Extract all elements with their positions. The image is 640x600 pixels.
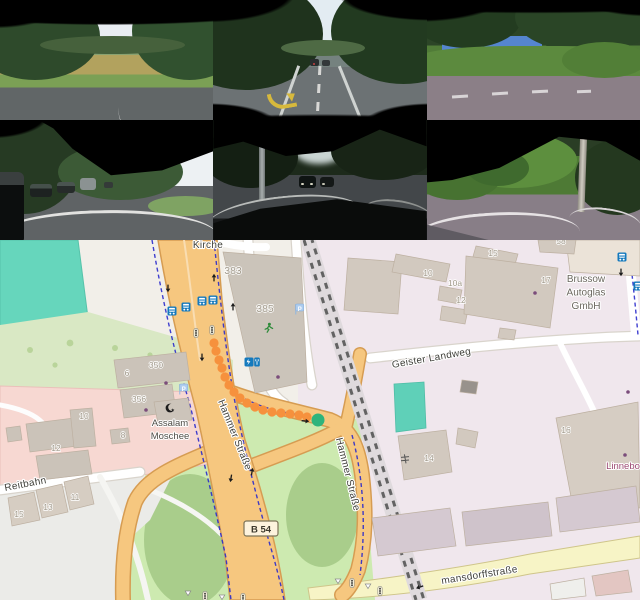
bus-stop-icon	[634, 282, 640, 291]
vehicle	[104, 182, 113, 188]
camera-grid	[0, 0, 640, 240]
svg-text:P: P	[182, 387, 186, 393]
route-dot	[220, 372, 229, 381]
route-dot	[276, 408, 285, 417]
traffic-signal-icon	[241, 593, 245, 600]
vehicle	[299, 176, 316, 188]
vehicle	[320, 177, 334, 187]
bus-stop-icon	[209, 296, 218, 305]
lane-marking	[452, 94, 468, 98]
svg-text:GmbH: GmbH	[572, 301, 601, 312]
route-dot	[209, 338, 218, 347]
house-number: 17	[541, 275, 551, 285]
route-destination-dot	[312, 414, 325, 427]
tree-line	[40, 36, 185, 54]
route-dot	[250, 402, 259, 411]
camera-front-left	[0, 0, 213, 120]
house-number: 6	[125, 368, 130, 378]
camera-front	[213, 0, 426, 120]
house-number: 12	[456, 295, 466, 305]
tree-foliage	[331, 122, 426, 180]
house-number: 385	[256, 303, 274, 315]
house-number: 13	[43, 502, 53, 512]
house-number: 15	[488, 248, 498, 258]
traffic-signal-icon	[194, 328, 198, 337]
bush	[467, 150, 529, 186]
tree-line	[281, 40, 365, 56]
house-number: 10	[79, 411, 89, 421]
lane-line	[338, 66, 363, 120]
route-dot	[214, 355, 223, 364]
tree-foliage	[58, 144, 183, 200]
lane-marking	[577, 90, 591, 93]
bus-stop-icon	[168, 307, 177, 316]
route-dot	[285, 409, 294, 418]
camera-back	[213, 120, 426, 240]
lane-marking	[492, 91, 508, 95]
route-dot	[258, 405, 267, 414]
vehicle	[57, 182, 75, 193]
house-number: 350	[149, 360, 163, 370]
svg-text:Linnebo: Linnebo	[606, 461, 640, 472]
ego-vehicle	[0, 172, 24, 240]
camera-back-left	[0, 120, 213, 240]
route-ref-badge: B 54	[244, 521, 278, 536]
bus-stop-icon	[182, 303, 191, 312]
mosque-icon: ★	[166, 404, 176, 413]
camera-back-right	[427, 120, 640, 240]
traffic-signal-icon	[378, 586, 382, 595]
bus-stop-icon	[618, 253, 627, 262]
house-number: 11	[71, 492, 80, 502]
svg-text:Moschee: Moschee	[151, 431, 190, 442]
vehicle	[322, 60, 330, 66]
route-dot	[211, 346, 220, 355]
house-number: 383	[224, 265, 242, 277]
house-number: 10	[423, 268, 433, 278]
camera-front-right	[427, 0, 640, 120]
svg-text:B 54: B 54	[251, 525, 272, 536]
vehicle	[80, 178, 96, 190]
traffic-signal-icon	[210, 325, 214, 334]
tree-foliage	[213, 126, 298, 188]
route-dot	[242, 398, 251, 407]
house-number: 58	[556, 240, 566, 246]
house-number: 14	[424, 453, 434, 463]
route-dot	[217, 363, 226, 372]
house-number: 16	[561, 425, 571, 435]
house-number: 12	[51, 443, 61, 453]
hedge	[562, 42, 640, 78]
lane-marking	[532, 90, 548, 94]
pitch-square	[394, 382, 426, 432]
route-dot	[294, 410, 303, 419]
house-number: 10a	[448, 278, 462, 288]
svg-text:Brussow: Brussow	[567, 274, 606, 285]
driving-scene-visualization: PP★ KircheHammer StraßeHammer StraßeGeis…	[0, 0, 640, 600]
vehicle	[30, 184, 52, 197]
traffic-signal-icon	[350, 578, 354, 587]
route-dot	[267, 407, 276, 416]
street-label: Kirche	[193, 240, 223, 251]
svg-text:Assalam: Assalam	[152, 418, 189, 429]
poi-label: BrussowAutoglasGmbH	[567, 274, 606, 312]
svg-text:Autoglas: Autoglas	[567, 288, 606, 299]
poi-label: Linnebo	[606, 461, 640, 472]
svg-text:P: P	[298, 307, 302, 313]
bus-stop-icon	[198, 297, 207, 306]
curb-line	[213, 188, 364, 240]
house-number: 8	[121, 430, 126, 440]
map-panel: PP★ KircheHammer StraßeHammer StraßeGeis…	[0, 240, 640, 600]
charging-station-icon	[245, 358, 260, 367]
lane-line	[362, 197, 427, 235]
pole	[259, 132, 265, 200]
lane-line	[316, 66, 322, 120]
house-number: 15	[14, 509, 24, 519]
house-number: 356	[132, 394, 146, 404]
traffic-signal-icon	[203, 591, 207, 600]
